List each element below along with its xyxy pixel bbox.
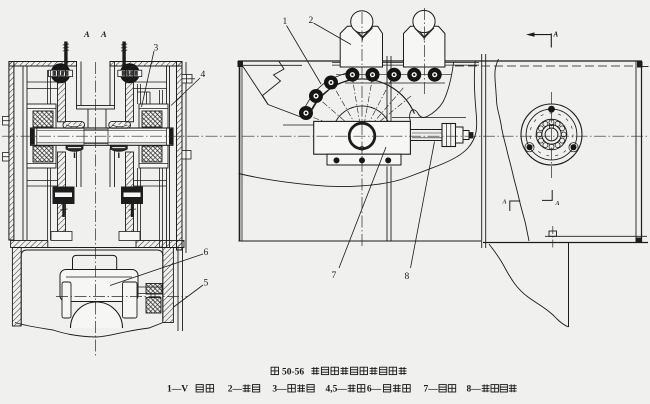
svg-text:2: 2 <box>309 16 314 26</box>
svg-text:4: 4 <box>201 70 206 80</box>
svg-text:A: A <box>83 29 90 39</box>
svg-text:7—: 7— <box>424 385 439 395</box>
svg-text:3: 3 <box>154 44 159 54</box>
svg-text:5: 5 <box>204 279 209 289</box>
svg-text:7: 7 <box>332 271 337 281</box>
svg-text:A: A <box>555 201 560 207</box>
svg-text:1—V: 1—V <box>167 385 188 395</box>
svg-text:6—: 6— <box>367 385 382 395</box>
svg-text:50-56: 50-56 <box>282 367 304 377</box>
svg-text:4,5—: 4,5— <box>326 385 348 395</box>
svg-text:1: 1 <box>283 17 288 27</box>
svg-text:8—: 8— <box>467 385 482 395</box>
svg-text:A: A <box>502 200 507 206</box>
svg-text:A: A <box>100 29 107 39</box>
svg-text:A: A <box>553 31 559 39</box>
svg-text:8: 8 <box>405 272 410 282</box>
svg-text:6: 6 <box>204 248 209 258</box>
svg-text:3—: 3— <box>272 385 287 395</box>
svg-text:2—: 2— <box>228 385 243 395</box>
